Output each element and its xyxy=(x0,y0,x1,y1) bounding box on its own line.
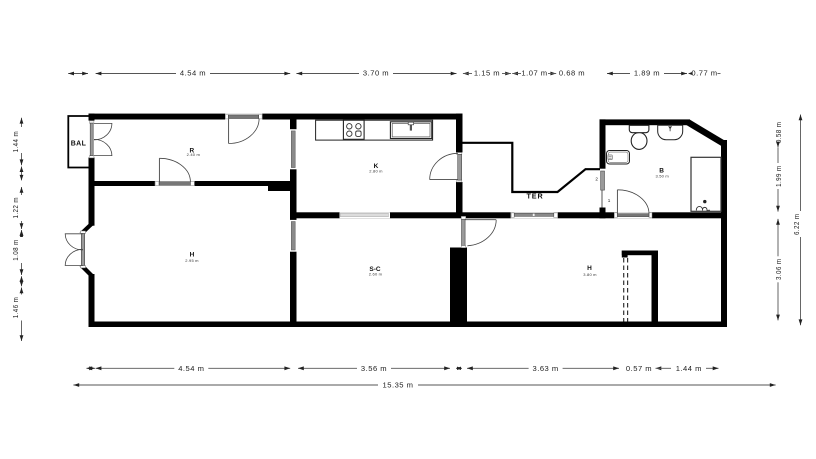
svg-text:0.77 m: 0.77 m xyxy=(691,69,717,78)
svg-text:1.99 m: 1.99 m xyxy=(775,165,783,186)
svg-text:3.80 m: 3.80 m xyxy=(583,272,597,277)
svg-text:1.89 m: 1.89 m xyxy=(634,69,660,78)
svg-text:2: 2 xyxy=(595,177,598,182)
svg-text:3.50 m: 3.50 m xyxy=(655,173,669,178)
svg-text:4.54 m: 4.54 m xyxy=(180,69,206,78)
svg-text:3.56 m: 3.56 m xyxy=(361,364,387,373)
svg-text:0.68 m: 0.68 m xyxy=(559,69,585,78)
svg-text:BAL: BAL xyxy=(71,140,87,147)
svg-text:6.22 m: 6.22 m xyxy=(794,214,802,235)
svg-text:1.15 m: 1.15 m xyxy=(474,69,500,78)
svg-text:1.44 m: 1.44 m xyxy=(12,131,20,152)
svg-text:3.06 m: 3.06 m xyxy=(775,259,783,280)
svg-text:1.07 m: 1.07 m xyxy=(521,69,547,78)
svg-text:1.46 m: 1.46 m xyxy=(12,297,20,318)
svg-text:2.40 m: 2.40 m xyxy=(187,152,201,157)
svg-text:4.54 m: 4.54 m xyxy=(178,364,204,373)
svg-text:2.95 m: 2.95 m xyxy=(185,258,199,263)
svg-text:1.22 m: 1.22 m xyxy=(12,197,20,218)
svg-text:0.57 m: 0.57 m xyxy=(626,364,652,373)
svg-text:0.58 m: 0.58 m xyxy=(775,122,783,143)
svg-text:1.08 m: 1.08 m xyxy=(12,239,20,260)
svg-text:2.80 m: 2.80 m xyxy=(369,169,383,174)
svg-text:1.44 m: 1.44 m xyxy=(676,364,702,373)
svg-text:2.60 m: 2.60 m xyxy=(369,272,383,277)
svg-text:15.35 m: 15.35 m xyxy=(383,381,414,390)
svg-text:1: 1 xyxy=(608,198,611,203)
svg-text:TER: TER xyxy=(526,191,543,200)
svg-text:3.63 m: 3.63 m xyxy=(532,364,558,373)
svg-text:3.70 m: 3.70 m xyxy=(363,69,389,78)
